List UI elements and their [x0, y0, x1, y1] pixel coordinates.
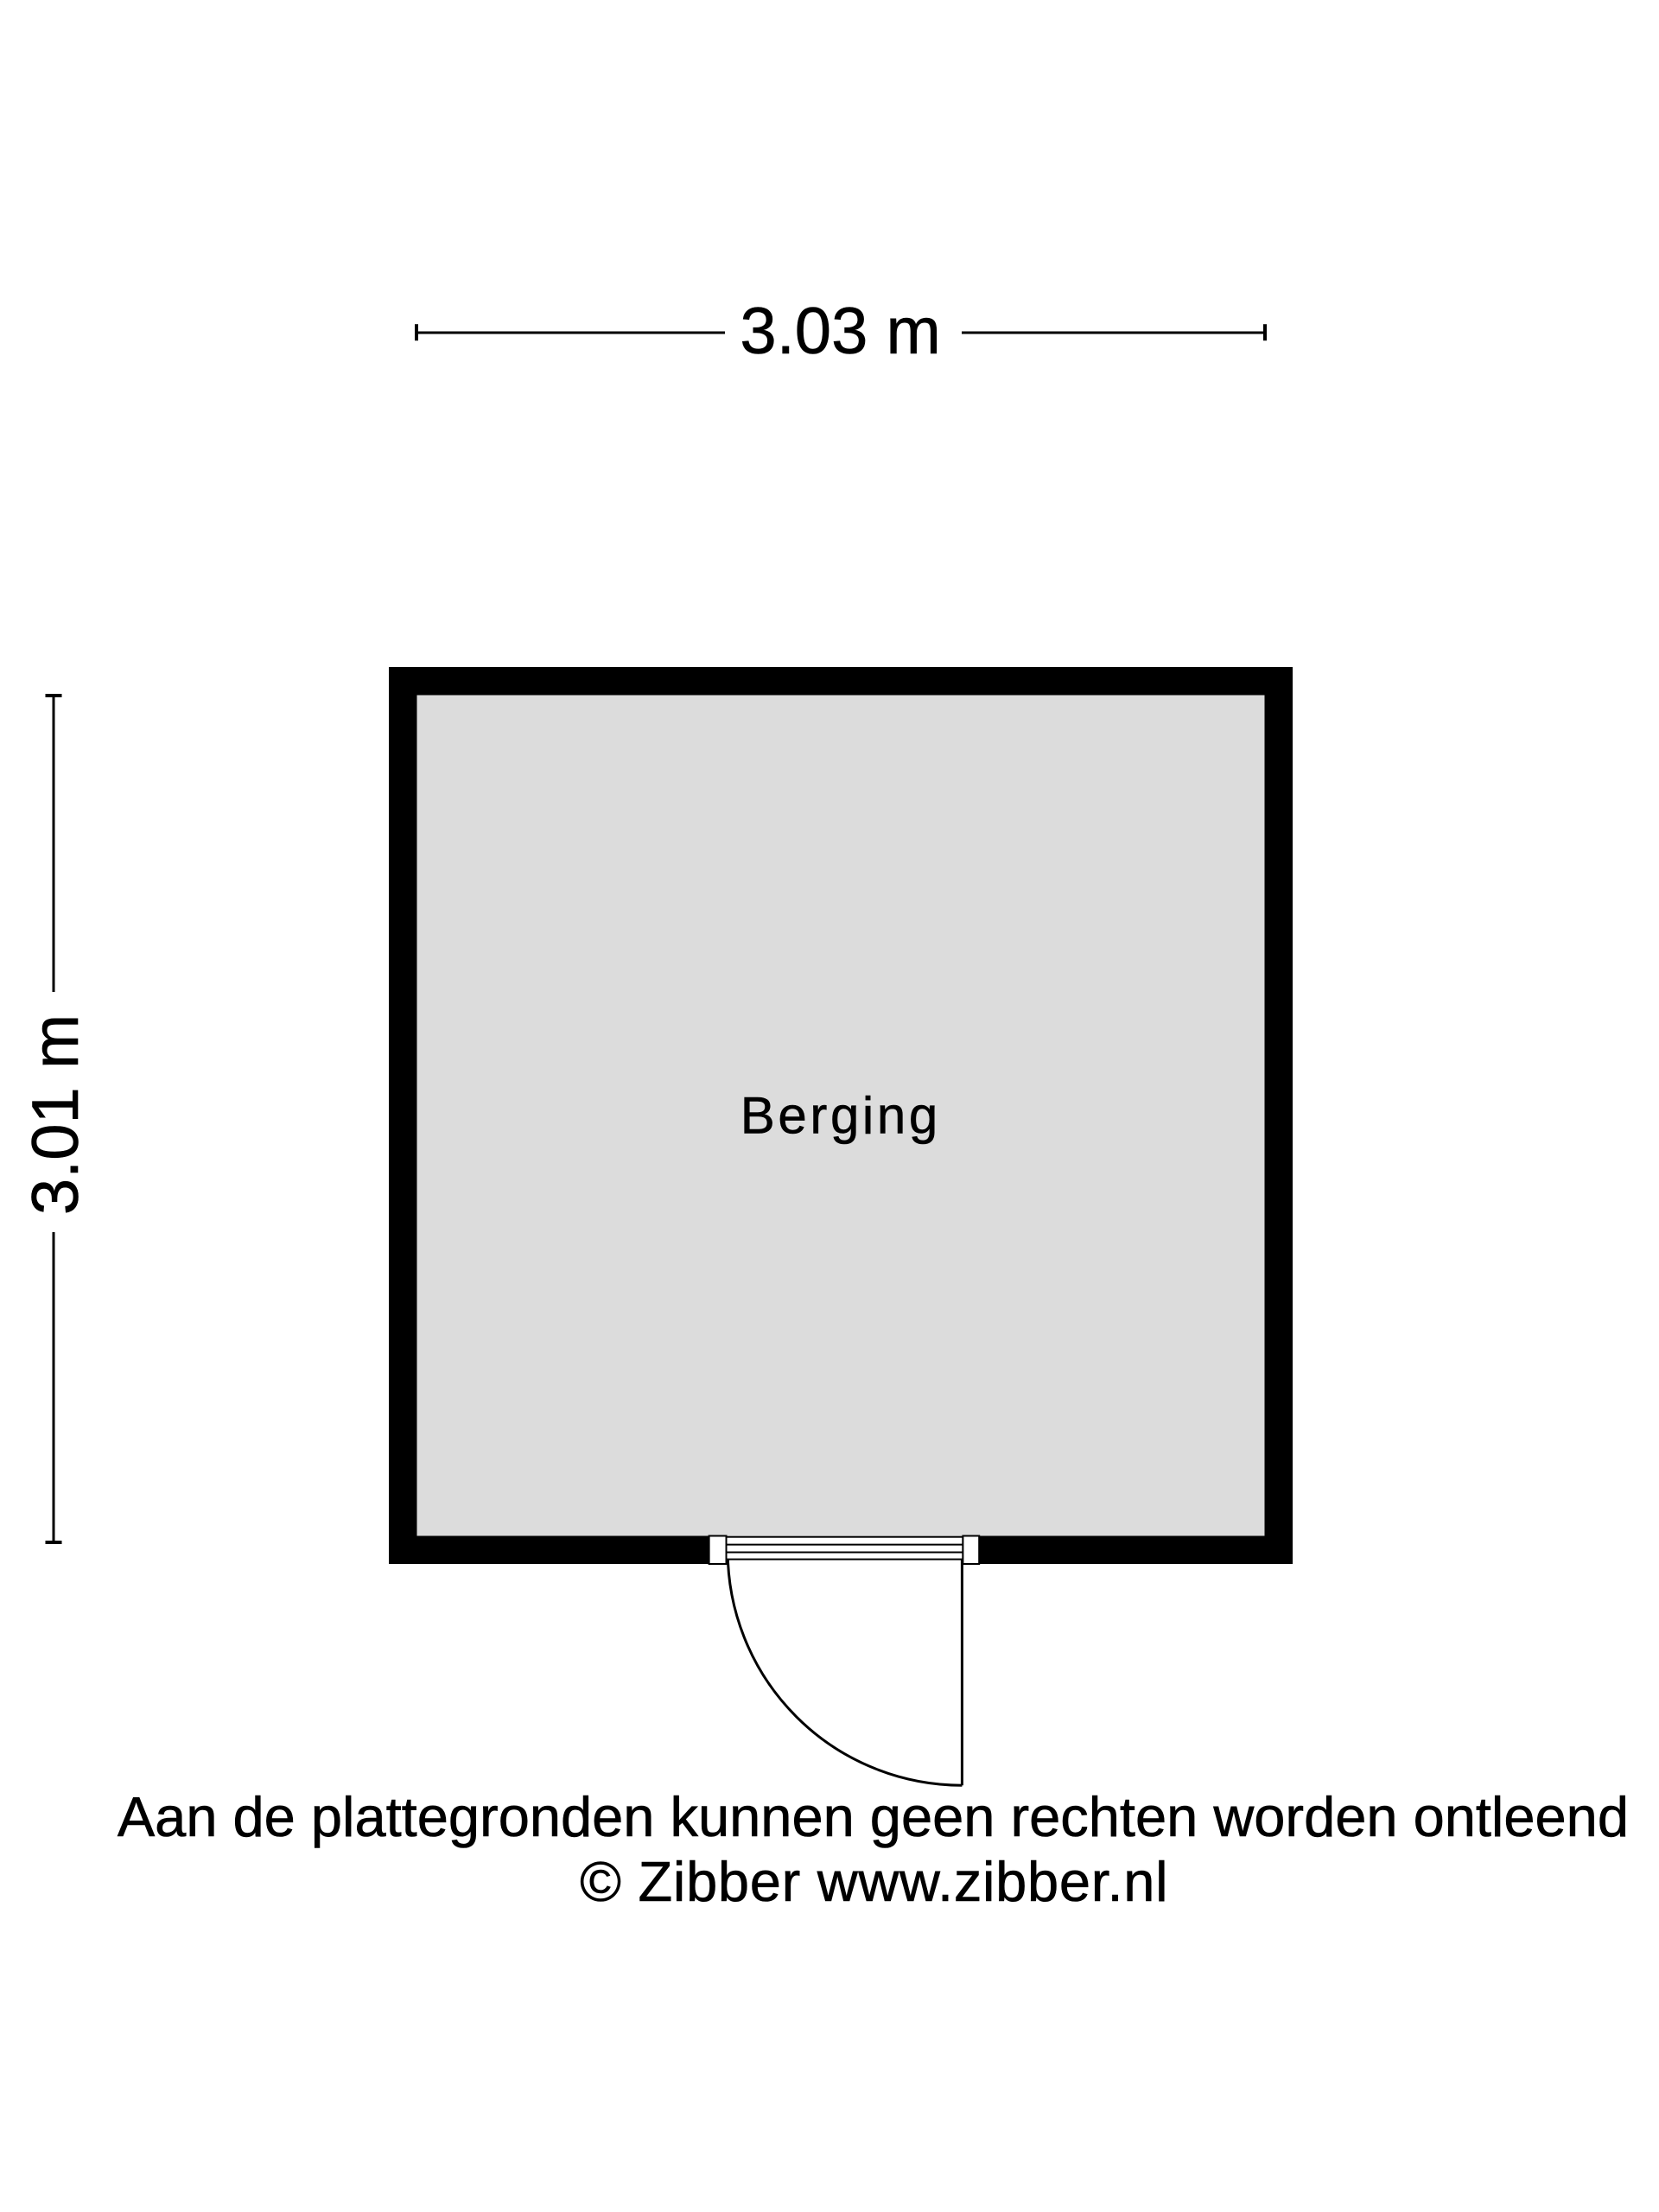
svg-text:© Zibber www.zibber.nl: © Zibber www.zibber.nl: [580, 1850, 1168, 1913]
svg-text:Berging: Berging: [741, 1086, 941, 1144]
svg-text:3.03 m: 3.03 m: [740, 295, 940, 368]
svg-text:Aan de plattegronden kunnen ge: Aan de plattegronden kunnen geen rechten…: [118, 1785, 1629, 1848]
svg-text:3.01 m: 3.01 m: [19, 1014, 92, 1215]
